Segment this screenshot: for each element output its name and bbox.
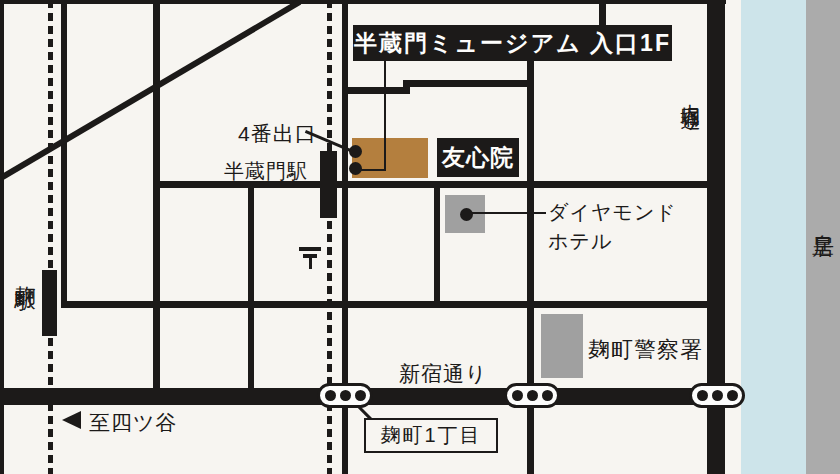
road-diagonal [0, 0, 301, 180]
kojimachi-1chome-label: 麹町1丁目 [380, 422, 481, 449]
road-top-border [0, 0, 726, 4]
moat-band [741, 0, 806, 474]
station-pill-3 [689, 383, 745, 408]
road-horizontal-b [61, 301, 707, 308]
station-dot [712, 390, 723, 401]
diamond-hotel-label-line2: ホテル [548, 228, 612, 255]
station-dot [542, 390, 553, 401]
road-vertical-g [599, 0, 606, 28]
hanzomon-museum-access-map: 半蔵門ミュージアム 入口1F 友心院 4番出口 半蔵門駅 ダイヤモンド ホテル … [0, 0, 840, 474]
postal-stem [309, 254, 313, 269]
station-dot [340, 390, 351, 401]
west-arrow-icon [62, 411, 81, 429]
shinjuku-dori-label: 新宿通り [399, 360, 488, 388]
kojimachi-station-label: 麹町駅 [11, 269, 39, 278]
kojimachi-1chome-box: 麹町1丁目 [364, 418, 498, 453]
diamond-hotel-dot [460, 208, 473, 221]
hanzomon-station-bar [320, 151, 337, 218]
exit4-label: 4番出口 [238, 120, 317, 148]
map-title: 半蔵門ミュージアム 入口1F [354, 28, 671, 59]
station-dot [325, 390, 336, 401]
road-vertical-c [248, 184, 254, 400]
postal-mark-icon [298, 245, 322, 271]
hotel-leader [472, 212, 546, 214]
police-station-label: 麹町警察署 [588, 335, 703, 365]
building-outline-right [403, 80, 531, 87]
road-vertical-a [61, 2, 67, 308]
hanzomon-station-label: 半蔵門駅 [224, 158, 308, 185]
postal-bar-top [299, 247, 321, 251]
station-dot [355, 390, 366, 401]
imperial-palace-label: 皇居 [808, 217, 838, 223]
police-station-block [541, 314, 583, 378]
diamond-hotel-label-line1: ダイヤモンド [548, 199, 677, 226]
station-dot [512, 390, 523, 401]
museum-building [352, 138, 428, 178]
station-pill-2 [504, 383, 560, 408]
road-vertical-f [527, 58, 534, 474]
station-dot [727, 390, 738, 401]
building-outline-left [345, 87, 408, 94]
road-vertical-b [153, 2, 160, 400]
palace-band [806, 0, 840, 474]
to-yotsuya-label: 至四ツ谷 [89, 409, 178, 437]
station-pill-1 [317, 383, 373, 408]
exit4-dot-lower [349, 162, 362, 175]
station-dot [697, 390, 708, 401]
yushinin-box: 友心院 [437, 138, 519, 177]
uchibori-dori-label: 内堀通り [678, 88, 705, 123]
subway-line-yurakucho [48, 0, 53, 474]
yushinin-label: 友心院 [442, 142, 514, 173]
road-vertical-e [434, 183, 440, 305]
map-title-box: 半蔵門ミュージアム 入口1F [353, 25, 672, 61]
kojimachi-station-bar [42, 270, 57, 336]
title-leader-vertical [384, 61, 386, 171]
station-dot [527, 390, 538, 401]
exit4-dot-upper [349, 145, 362, 158]
